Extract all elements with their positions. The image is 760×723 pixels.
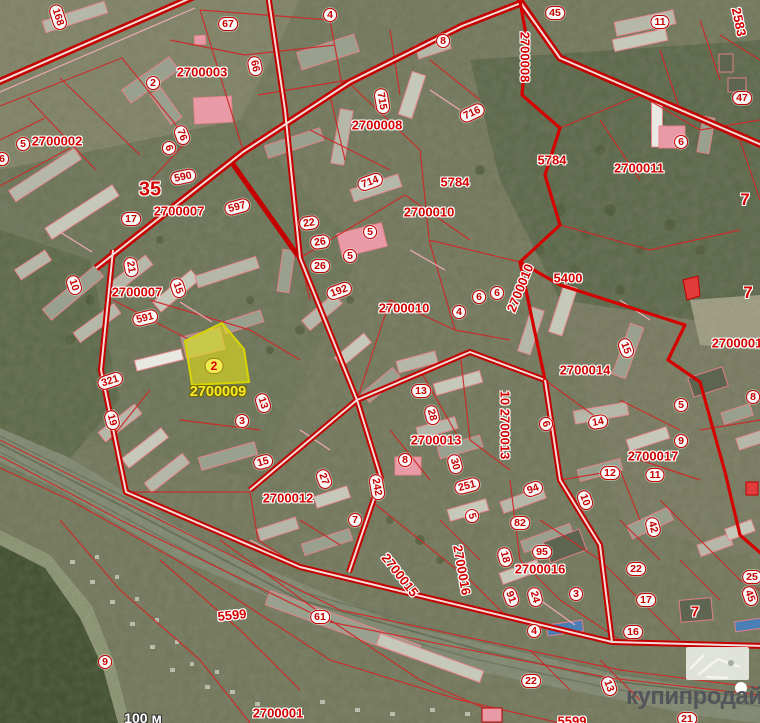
cadastral-quarter-label: 2700015: [379, 550, 422, 599]
parcel-number-badge: 242: [368, 473, 386, 501]
parcel-number-badge: 5: [674, 398, 688, 412]
parcel-number-badge: 5: [463, 508, 480, 525]
parcel-number-badge: 22: [521, 674, 541, 688]
parcel-number-badge: 15: [616, 336, 636, 359]
parcel-number-badge: 15: [168, 276, 187, 299]
cadastral-quarter-label: 2700001: [253, 706, 304, 721]
parcel-number-badge: 13: [411, 384, 431, 398]
parcel-number-badge: 15: [252, 453, 275, 472]
parcel-number-badge: 91: [501, 585, 521, 608]
parcel-number-badge: 715: [373, 87, 391, 115]
cadastral-quarter-label: 5599: [558, 714, 587, 723]
selected-parcel-number-badge[interactable]: 2: [205, 358, 224, 374]
parcel-number-badge: 590: [169, 167, 197, 186]
cadastral-quarter-label: 5784: [441, 175, 470, 190]
parcel-number-badge: 5: [343, 249, 357, 263]
cadastral-quarter-label: 2700002: [32, 134, 83, 149]
parcel-number-badge: 5: [16, 137, 30, 151]
cadastral-quarter-label: 2700007: [154, 204, 205, 219]
parcel-number-badge: 9: [98, 655, 112, 669]
cadastral-quarter-label: 7: [691, 604, 699, 621]
parcel-number-badge: 94: [521, 479, 544, 499]
parcel-number-badge: 6: [490, 286, 504, 300]
parcel-number-badge: 168: [47, 3, 68, 32]
parcel-number-badge: 6: [537, 415, 555, 433]
parcel-number-badge: 11: [650, 15, 669, 29]
parcel-number-badge: 13: [253, 391, 272, 414]
scale-label: 100 м: [124, 710, 162, 723]
parcel-number-badge: 6: [0, 152, 9, 166]
parcel-number-badge: 45: [740, 584, 760, 607]
parcel-number-badge: 4: [452, 305, 466, 319]
parcel-number-badge: 47: [732, 91, 752, 105]
parcel-number-badge: 27: [314, 467, 334, 490]
cadastral-quarter-label: 7: [743, 283, 752, 303]
parcel-number-badge: 42: [644, 516, 663, 539]
parcel-number-badge: 2: [146, 76, 160, 90]
parcel-number-badge: 24: [526, 586, 545, 609]
cadastral-quarter-label: 2583: [729, 6, 750, 37]
map-canvas[interactable]: 2700002270000327000072700007270000827000…: [0, 0, 760, 723]
parcel-number-badge: 26: [310, 259, 330, 273]
cadastral-quarter-label: 5400: [554, 271, 583, 286]
parcel-number-badge: 8: [746, 390, 760, 404]
cadastral-quarter-label: 2700010: [404, 205, 455, 220]
parcel-number-badge: 12: [600, 466, 620, 480]
cadastral-quarter-label: 5784: [538, 153, 567, 168]
parcel-number-badge: 8: [398, 453, 412, 467]
watermark-map-thumbnail: [686, 647, 749, 680]
watermark-text: купипродай: [626, 683, 760, 711]
parcel-number-badge: 66: [246, 55, 264, 77]
parcel-number-badge: 9: [674, 434, 688, 448]
cadastral-quarter-label: 2700016: [450, 544, 474, 596]
cadastral-quarter-label: 2700007: [112, 285, 163, 300]
parcel-number-badge: 16: [623, 625, 643, 639]
cadastral-quarter-label: 2700003: [177, 65, 228, 80]
parcel-number-badge: 10: [64, 273, 83, 296]
parcel-number-badge: 30: [446, 453, 465, 476]
parcel-number-badge: 10: [575, 488, 595, 511]
parcel-number-badge: 6: [160, 139, 178, 157]
parcel-number-badge: 192: [325, 280, 354, 302]
parcel-number-badge: 26: [309, 234, 330, 251]
parcel-number-badge: 321: [96, 370, 125, 391]
parcel-number-badge: 18: [496, 546, 515, 569]
parcel-number-badge: 22: [626, 562, 646, 576]
parcel-number-badge: 11: [645, 468, 664, 482]
parcel-number-badge: 61: [310, 610, 330, 624]
cadastral-quarter-label: 7: [740, 190, 749, 210]
cadastral-quarter-label: 2700013: [411, 433, 462, 448]
parcel-number-badge: 67: [218, 17, 238, 31]
cadastral-quarter-label: 2700001: [712, 336, 760, 351]
cadastral-quarter-label: 2700014: [560, 363, 611, 378]
parcel-number-badge: 3: [569, 587, 583, 601]
parcel-number-badge: 7: [348, 513, 362, 527]
parcel-number-badge: 28: [423, 404, 442, 427]
parcel-number-badge: 591: [131, 308, 159, 328]
cadastral-quarter-label: 2700008: [518, 32, 533, 83]
cadastral-quarter-label: 5599: [217, 606, 247, 624]
labels-layer: 2700002270000327000072700007270000827000…: [0, 0, 760, 723]
parcel-number-badge: 13: [599, 674, 619, 697]
parcel-number-badge: 76: [172, 123, 192, 146]
parcel-number-badge: 4: [527, 624, 541, 638]
parcel-number-badge: 3: [235, 414, 249, 428]
parcel-number-badge: 5: [363, 225, 377, 239]
parcel-number-badge: 22: [298, 215, 319, 232]
parcel-number-badge: 17: [636, 593, 656, 607]
selected-quarter-label: 2700009: [190, 384, 246, 400]
cadastral-quarter-label: 2700010: [379, 301, 430, 316]
cadastral-quarter-label: 2700016: [515, 562, 566, 577]
parcel-number-badge: 714: [356, 171, 385, 193]
parcel-number-badge: 21: [122, 256, 139, 278]
cadastral-quarter-label: 2700008: [352, 118, 403, 133]
cadastral-quarter-label: 2700010: [504, 262, 537, 315]
parcel-number-badge: 45: [545, 6, 565, 20]
parcel-number-badge: 597: [223, 197, 251, 217]
parcel-number-badge: 8: [436, 34, 450, 48]
parcel-number-badge: 6: [472, 290, 486, 304]
parcel-number-badge: 95: [532, 545, 552, 559]
parcel-number-badge: 14: [587, 413, 609, 430]
cadastral-quarter-label: 2700011: [614, 161, 664, 176]
parcel-number-badge: 82: [510, 516, 530, 530]
cadastral-quarter-label: 2700012: [263, 491, 314, 506]
cadastral-quarter-label: 2700017: [628, 449, 679, 464]
parcel-number-badge: 17: [121, 212, 141, 226]
parcel-number-badge: 6: [674, 135, 688, 149]
parcel-number-badge: 251: [453, 476, 481, 496]
parcel-number-badge: 21: [677, 712, 697, 723]
cadastral-quarter-label: 35: [139, 179, 161, 202]
parcel-number-badge: 4: [323, 8, 337, 22]
cadastral-quarter-label: 10 2700013: [498, 391, 513, 460]
parcel-number-badge: 25: [742, 570, 760, 584]
parcel-number-badge: 716: [457, 101, 486, 124]
parcel-number-badge: 19: [103, 409, 122, 432]
